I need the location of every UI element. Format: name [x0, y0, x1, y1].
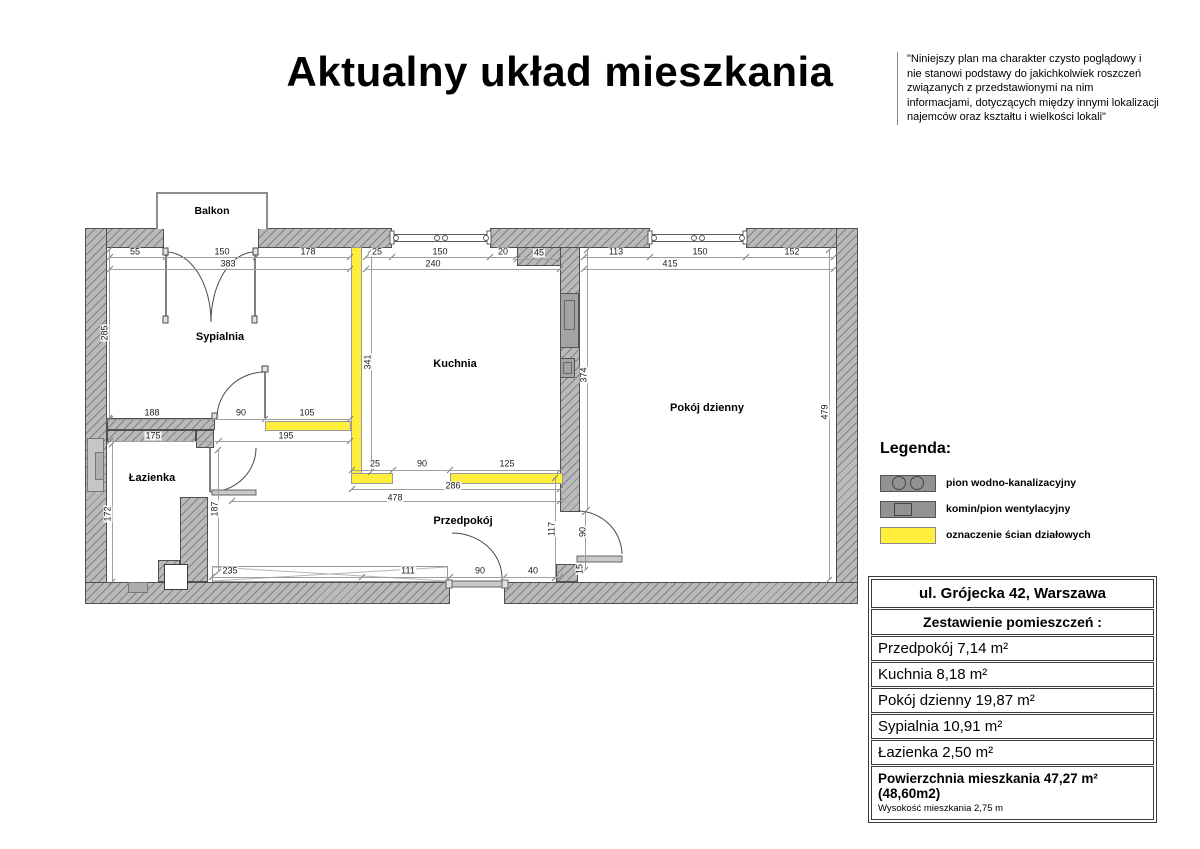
table-row: Przedpokój 7,14 m² — [871, 636, 1154, 661]
partition-wall-yellow — [351, 473, 393, 484]
dimension-label: 90 — [235, 409, 247, 418]
apartment-height-note: Wysokość mieszkania 2,75 m — [878, 803, 1147, 814]
legend-item-label: komin/pion wentylacyjny — [946, 503, 1070, 515]
vent-square-icon — [894, 503, 912, 516]
dimension-label: 90 — [579, 526, 588, 538]
room-label-kuchnia: Kuchnia — [433, 358, 476, 370]
legend-item-label: pion wodno-kanalizacyjny — [946, 477, 1076, 489]
dimension-label: 150 — [431, 248, 448, 257]
chimney-vent-icon — [880, 501, 936, 518]
dimension-label: 235 — [221, 567, 238, 576]
table-total-row: Powierzchnia mieszkania 47,27 m² (48,60m… — [871, 766, 1154, 820]
legend: Legenda: pion wodno-kanalizacyjny komin/… — [880, 440, 1160, 552]
dimension-label: 341 — [364, 353, 373, 370]
dimension-label: 25 — [369, 460, 381, 469]
total-area: Powierzchnia mieszkania 47,27 m² (48,60m… — [878, 771, 1147, 801]
wall-niche — [164, 564, 188, 590]
dimension-line — [212, 577, 560, 578]
floor-plan-page: Aktualny układ mieszkania "Niniejszy pla… — [0, 0, 1200, 849]
dimension-label: 117 — [548, 521, 557, 537]
chimney-duct-inner — [564, 300, 575, 330]
dimension-line — [584, 257, 834, 258]
bathroom-riser-inner — [95, 452, 104, 480]
room-label-sypialnia: Sypialnia — [196, 331, 244, 343]
dimension-label: 15 — [576, 563, 585, 575]
dimension-label: 285 — [101, 324, 110, 341]
kitchen-window — [390, 231, 491, 244]
legend-item: oznaczenie ścian działowych — [880, 526, 1160, 544]
dimension-label: 175 — [144, 432, 161, 441]
dimension-label: 286 — [444, 482, 461, 491]
partition-wall-icon — [880, 527, 936, 544]
room-label-balkon: Balkon — [194, 205, 229, 217]
dimension-line — [519, 259, 559, 260]
dimension-label: 150 — [213, 248, 230, 257]
wall-segment — [490, 228, 650, 248]
dimension-line — [366, 257, 516, 258]
dimension-line — [366, 269, 562, 270]
entrance-door — [446, 533, 508, 588]
table-row: Pokój dzienny 19,87 m² — [871, 688, 1154, 713]
room-label-lazienka: Łazienka — [129, 472, 175, 484]
dimension-label: 111 — [400, 567, 416, 576]
disclaimer-text: "Niniejszy plan ma charakter czysto pogl… — [897, 52, 1159, 125]
legend-item: komin/pion wentylacyjny — [880, 500, 1160, 518]
dimension-label: 20 — [497, 248, 509, 257]
table-row: Kuchnia 8,18 m² — [871, 662, 1154, 687]
legend-item-label: oznaczenie ścian działowych — [946, 529, 1091, 541]
dimension-label: 415 — [661, 260, 678, 269]
dimension-label: 90 — [416, 460, 428, 469]
dimension-label: 150 — [691, 248, 708, 257]
dimension-line — [110, 441, 350, 442]
wall-left — [85, 228, 107, 604]
dimension-label: 25 — [371, 248, 383, 257]
dimension-line — [584, 269, 834, 270]
wall-kitchen-living — [560, 247, 580, 512]
dimension-label: 45 — [533, 249, 545, 258]
bathroom-fixture — [128, 582, 148, 593]
living-room-window — [648, 231, 747, 244]
dimension-line — [110, 269, 350, 270]
room-summary-table: ul. Grójecka 42, Warszawa Zestawienie po… — [868, 576, 1157, 823]
dimension-label: 125 — [498, 460, 515, 469]
partition-wall-yellow — [450, 473, 563, 484]
table-address: ul. Grójecka 42, Warszawa — [871, 579, 1154, 608]
wall-segment — [258, 228, 392, 248]
table-heading: Zestawienie pomieszczeń : — [871, 609, 1154, 635]
dimension-label: 188 — [143, 409, 160, 418]
riser-circle-icon — [910, 476, 924, 490]
dimension-label: 172 — [104, 505, 113, 522]
dimension-label: 105 — [298, 409, 315, 418]
dimension-line — [110, 419, 350, 420]
wall-stub — [196, 430, 214, 448]
balcony-door — [163, 248, 258, 323]
dimension-label: 383 — [219, 260, 236, 269]
partition-wall-yellow — [351, 247, 362, 484]
dimension-ticks — [106, 247, 837, 585]
dimension-label: 374 — [580, 366, 589, 383]
dimension-label: 40 — [527, 567, 539, 576]
wall-right — [836, 228, 858, 604]
dimension-label: 240 — [424, 260, 441, 269]
dimension-label: 479 — [821, 403, 830, 420]
dimension-label: 152 — [783, 248, 800, 257]
dimension-label: 178 — [299, 248, 316, 257]
dimension-line — [585, 512, 586, 570]
partition-wall-yellow — [265, 421, 351, 431]
riser-circle-icon — [892, 476, 906, 490]
legend-item: pion wodno-kanalizacyjny — [880, 474, 1160, 492]
wall-bottom — [504, 582, 858, 604]
table-row: Łazienka 2,50 m² — [871, 740, 1154, 765]
dimension-line — [352, 470, 560, 471]
dimension-label: 55 — [129, 248, 141, 257]
legend-heading: Legenda: — [880, 440, 1160, 458]
water-sewage-riser-icon — [880, 475, 936, 492]
room-label-pokoj-dzienny: Pokój dzienny — [670, 402, 744, 414]
dimension-label: 195 — [277, 432, 294, 441]
dimension-label: 90 — [474, 567, 486, 576]
bathroom-door — [210, 448, 256, 495]
dimension-label: 478 — [386, 494, 403, 503]
dimension-label: 187 — [211, 500, 220, 517]
page-title: Aktualny układ mieszkania — [240, 48, 880, 96]
dimension-label: 113 — [608, 248, 624, 257]
vent-duct-inner — [563, 362, 572, 374]
room-label-przedpokoj: Przedpokój — [433, 515, 492, 527]
table-row: Sypialnia 10,91 m² — [871, 714, 1154, 739]
